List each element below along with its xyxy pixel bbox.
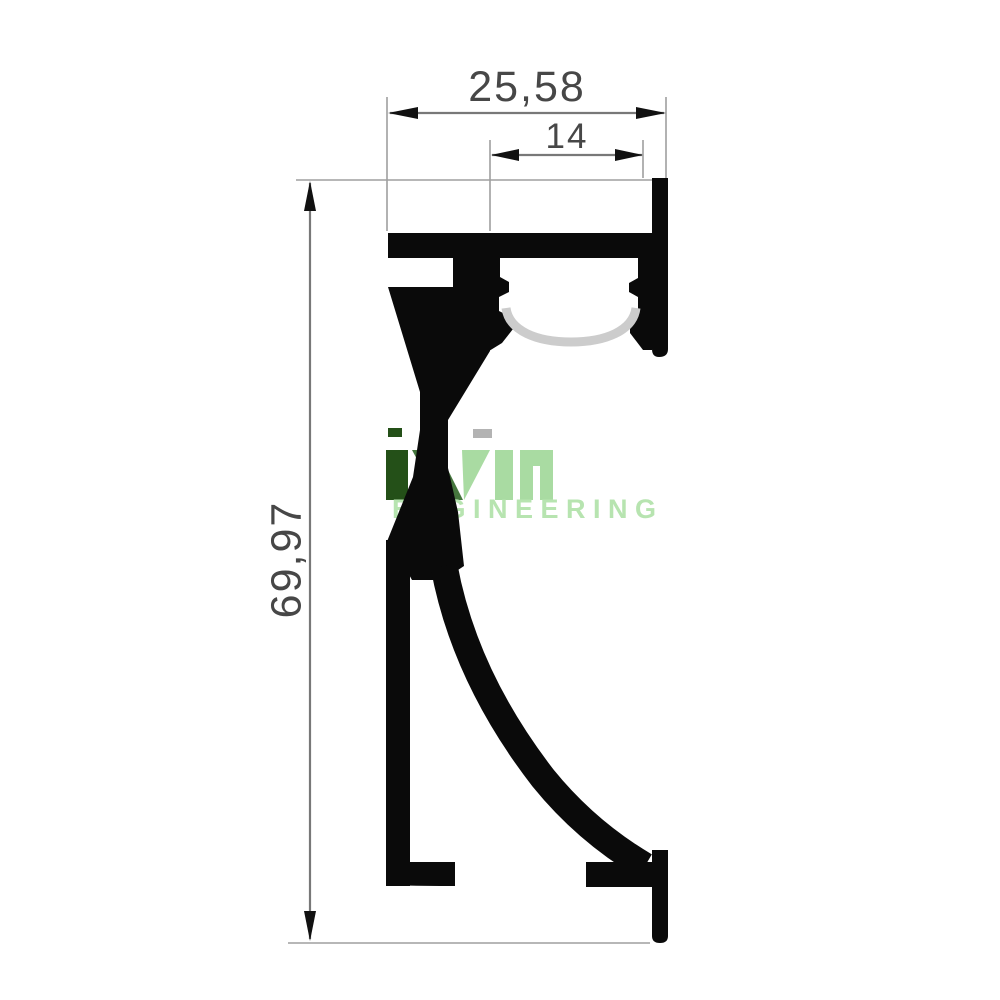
watermark-letter-i2: [495, 450, 513, 500]
profile-bottom-tab: [652, 850, 668, 943]
profile-mounting-flange: [652, 178, 668, 357]
profile-support-brace: [444, 566, 645, 866]
dimension-label-top-width: 25,58: [427, 66, 627, 109]
dimension-label-height: 69,97: [266, 460, 309, 660]
profile-channel-right-wall: [629, 256, 652, 350]
watermark-dot-1: [388, 428, 402, 437]
arrowhead-top-left: [388, 107, 418, 119]
profile-right-foot: [586, 862, 660, 887]
watermark-letter-v-right: [462, 450, 490, 500]
arrowhead-height-bottom: [304, 911, 316, 941]
watermark-dot-2: [473, 429, 492, 438]
arrowhead-height-top: [304, 181, 316, 211]
dimension-label-slot-width: 14: [507, 119, 627, 154]
profile-left-leg: [386, 540, 410, 886]
watermark-letter-n: [520, 450, 553, 500]
diffuser-lens-arc: [506, 308, 636, 342]
profile-drawing: ENGINEERING: [0, 0, 1000, 1000]
profile-top-bar: [388, 233, 653, 258]
profile-upper-stem: [388, 287, 490, 437]
profile-left-foot: [386, 862, 455, 886]
drawing-canvas: ENGINEERING: [0, 0, 1000, 1000]
arrowhead-top-right: [636, 107, 666, 119]
watermark-letter-i1: [386, 450, 408, 500]
profile-body: [386, 178, 668, 943]
